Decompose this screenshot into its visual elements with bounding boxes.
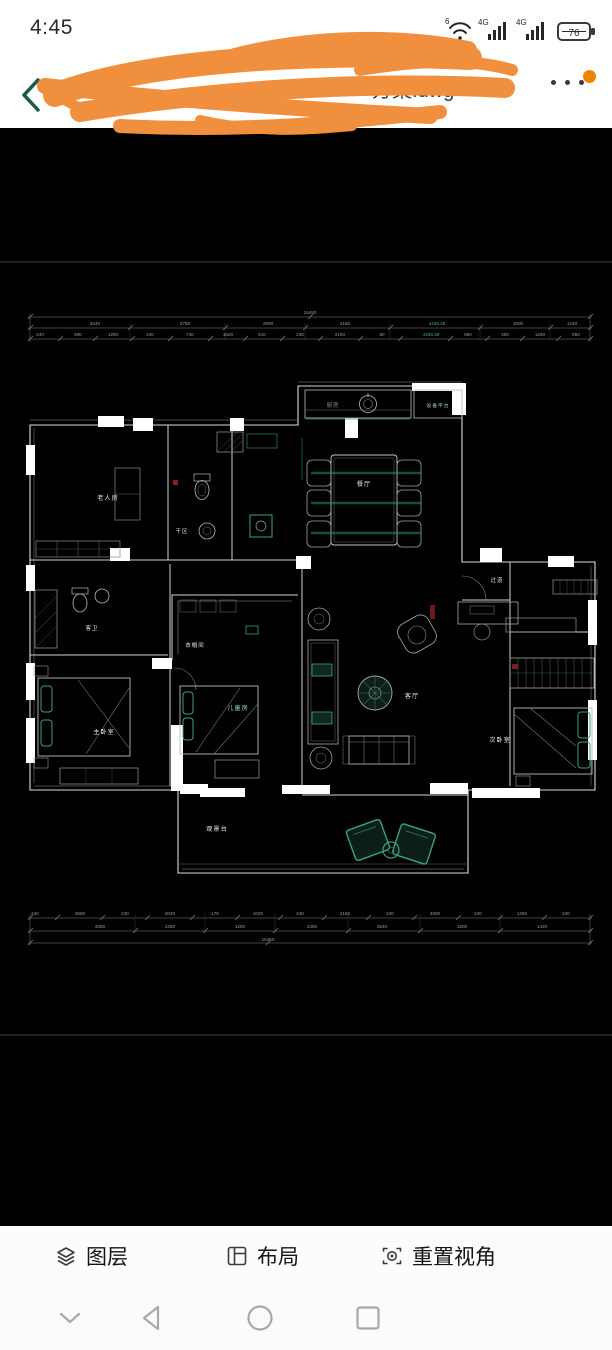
svg-text:240: 240 xyxy=(562,911,570,916)
room-kitchen: 厨房 设备平台 xyxy=(305,390,462,419)
reset-view-button[interactable]: 重置视角 xyxy=(381,1226,496,1286)
svg-text:170: 170 xyxy=(211,911,219,916)
svg-text:主卧室: 主卧室 xyxy=(93,728,115,736)
chevron-down-icon xyxy=(58,1311,82,1325)
svg-text:1260: 1260 xyxy=(535,332,546,337)
home-circle-icon xyxy=(246,1304,274,1332)
bottom-dimension-rows: 240 3060 240 2040 170 1020 240 2150 240 … xyxy=(28,911,593,945)
4g-signal-icon xyxy=(488,22,506,40)
svg-text:客卫: 客卫 xyxy=(86,624,99,632)
room-living: 客厅 xyxy=(308,608,440,769)
battery-icon: 76 xyxy=(558,23,595,40)
svg-text:80: 80 xyxy=(379,332,385,337)
back-button[interactable] xyxy=(18,74,48,116)
room-elder: 老人房 xyxy=(36,468,140,557)
svg-text:3240: 3240 xyxy=(90,321,101,326)
svg-text:厨房: 厨房 xyxy=(327,401,340,409)
nav-recents-button[interactable] xyxy=(350,1300,386,1336)
bottom-toolbar: 图层 布局 重置视角 xyxy=(0,1226,612,1286)
room-second-bedroom: 次卧室 xyxy=(489,618,594,786)
status-icons: 6 4G 4G 76 xyxy=(442,14,602,46)
svg-text:儿童房: 儿童房 xyxy=(227,704,249,712)
svg-text:1260: 1260 xyxy=(235,924,246,929)
layers-label: 图层 xyxy=(86,1241,128,1271)
svg-text:干区: 干区 xyxy=(176,528,189,535)
svg-text:餐厅: 餐厅 xyxy=(357,480,371,488)
svg-text:3300: 3300 xyxy=(95,924,106,929)
svg-text:1240: 1240 xyxy=(567,321,578,326)
top-dimension-rows: 16450 3240 2750 2600 2150 4438.38 1500 1… xyxy=(28,310,593,342)
back-triangle-icon xyxy=(139,1304,165,1332)
svg-text:2150: 2150 xyxy=(340,911,351,916)
room-balcony: 观景台 xyxy=(178,819,468,865)
layout-icon xyxy=(226,1245,248,1267)
wifi6-icon xyxy=(450,23,470,39)
room-guest-bath: 客卫 xyxy=(35,588,109,648)
status-time: 4:45 xyxy=(30,16,73,40)
svg-text:2150: 2150 xyxy=(340,321,351,326)
svg-text:4438.38: 4438.38 xyxy=(423,332,440,337)
4g-signal-icon xyxy=(526,22,544,40)
room-master-bedroom: 主卧室 xyxy=(34,666,138,784)
svg-text:240: 240 xyxy=(146,332,154,337)
notification-badge xyxy=(583,70,596,83)
svg-text:2600: 2600 xyxy=(263,321,274,326)
svg-text:240: 240 xyxy=(386,911,394,916)
room-dry-area: 干区 xyxy=(173,432,277,539)
svg-text:1260: 1260 xyxy=(517,911,528,916)
system-nav-bar xyxy=(0,1286,612,1350)
room-cloakroom: 衣帽间 xyxy=(180,600,258,649)
svg-text:240: 240 xyxy=(296,911,304,916)
svg-text:3540: 3540 xyxy=(377,924,388,929)
svg-text:客厅: 客厅 xyxy=(405,692,419,700)
svg-text:观景台: 观景台 xyxy=(206,825,228,833)
dot xyxy=(551,80,556,85)
svg-text:850: 850 xyxy=(572,332,580,337)
app-header: 4:45 6 4G 4G xyxy=(0,0,612,128)
reset-view-label: 重置视角 xyxy=(412,1241,496,1271)
battery-level: 76 xyxy=(568,28,580,39)
svg-text:设备平台: 设备平台 xyxy=(426,402,449,409)
watermark-text: Q QIN xyxy=(70,100,104,114)
svg-text:1500: 1500 xyxy=(457,924,468,929)
svg-text:2280: 2280 xyxy=(165,924,176,929)
layout-button[interactable]: 布局 xyxy=(226,1226,299,1286)
svg-text:2750: 2750 xyxy=(180,321,191,326)
cad-viewport[interactable]: 16450 3240 2750 2600 2150 4438.38 1500 1… xyxy=(0,128,612,1226)
nav-home-button[interactable] xyxy=(242,1300,278,1336)
svg-text:740: 740 xyxy=(186,332,194,337)
svg-text:240: 240 xyxy=(36,332,44,337)
svg-text:4438.38: 4438.38 xyxy=(429,321,446,326)
phone-screen: 4:45 6 4G 4G xyxy=(0,0,612,1350)
room-hallway: 过道 xyxy=(430,576,597,640)
svg-text:2150: 2150 xyxy=(335,332,346,337)
network-badge-2: 4G xyxy=(516,18,527,27)
svg-text:1500: 1500 xyxy=(513,321,524,326)
svg-text:300: 300 xyxy=(501,332,509,337)
back-chevron-icon xyxy=(24,80,38,110)
svg-text:240: 240 xyxy=(121,911,129,916)
reset-view-icon xyxy=(381,1245,403,1267)
layers-icon xyxy=(55,1245,77,1267)
dot xyxy=(565,80,570,85)
svg-text:16450: 16450 xyxy=(304,310,317,315)
nav-back-button[interactable] xyxy=(134,1300,170,1336)
room-dining: 餐厅 xyxy=(307,455,421,547)
recents-square-icon xyxy=(354,1304,382,1332)
svg-text:1420: 1420 xyxy=(537,924,548,929)
svg-text:1020: 1020 xyxy=(253,911,264,916)
svg-text:2390: 2390 xyxy=(307,924,318,929)
svg-text:240: 240 xyxy=(296,332,304,337)
document-title: 方案.dwg xyxy=(372,74,454,103)
svg-text:240: 240 xyxy=(31,911,39,916)
svg-text:3060: 3060 xyxy=(75,911,86,916)
nav-hide-button[interactable] xyxy=(52,1300,88,1336)
svg-text:次卧室: 次卧室 xyxy=(489,736,511,744)
svg-text:3300: 3300 xyxy=(430,911,441,916)
dot xyxy=(579,80,584,85)
svg-text:610: 610 xyxy=(258,332,266,337)
svg-text:960: 960 xyxy=(464,332,472,337)
network-badge-1: 4G xyxy=(478,18,489,27)
svg-text:240: 240 xyxy=(474,911,482,916)
svg-text:老人房: 老人房 xyxy=(97,494,119,502)
layout-label: 布局 xyxy=(257,1241,299,1271)
more-menu-button[interactable] xyxy=(551,80,584,85)
svg-text:衣帽间: 衣帽间 xyxy=(185,641,204,649)
wifi6-badge: 6 xyxy=(445,17,450,26)
svg-text:1500: 1500 xyxy=(223,332,234,337)
svg-text:1260: 1260 xyxy=(108,332,119,337)
svg-text:16450: 16450 xyxy=(262,937,275,942)
svg-text:900: 900 xyxy=(74,332,82,337)
svg-text:2040: 2040 xyxy=(165,911,176,916)
svg-text:过道: 过道 xyxy=(491,576,504,584)
room-kids: 儿童房 xyxy=(180,686,259,778)
floor-plan-drawing: 16450 3240 2750 2600 2150 4438.38 1500 1… xyxy=(0,128,612,1226)
layers-button[interactable]: 图层 xyxy=(55,1226,128,1286)
